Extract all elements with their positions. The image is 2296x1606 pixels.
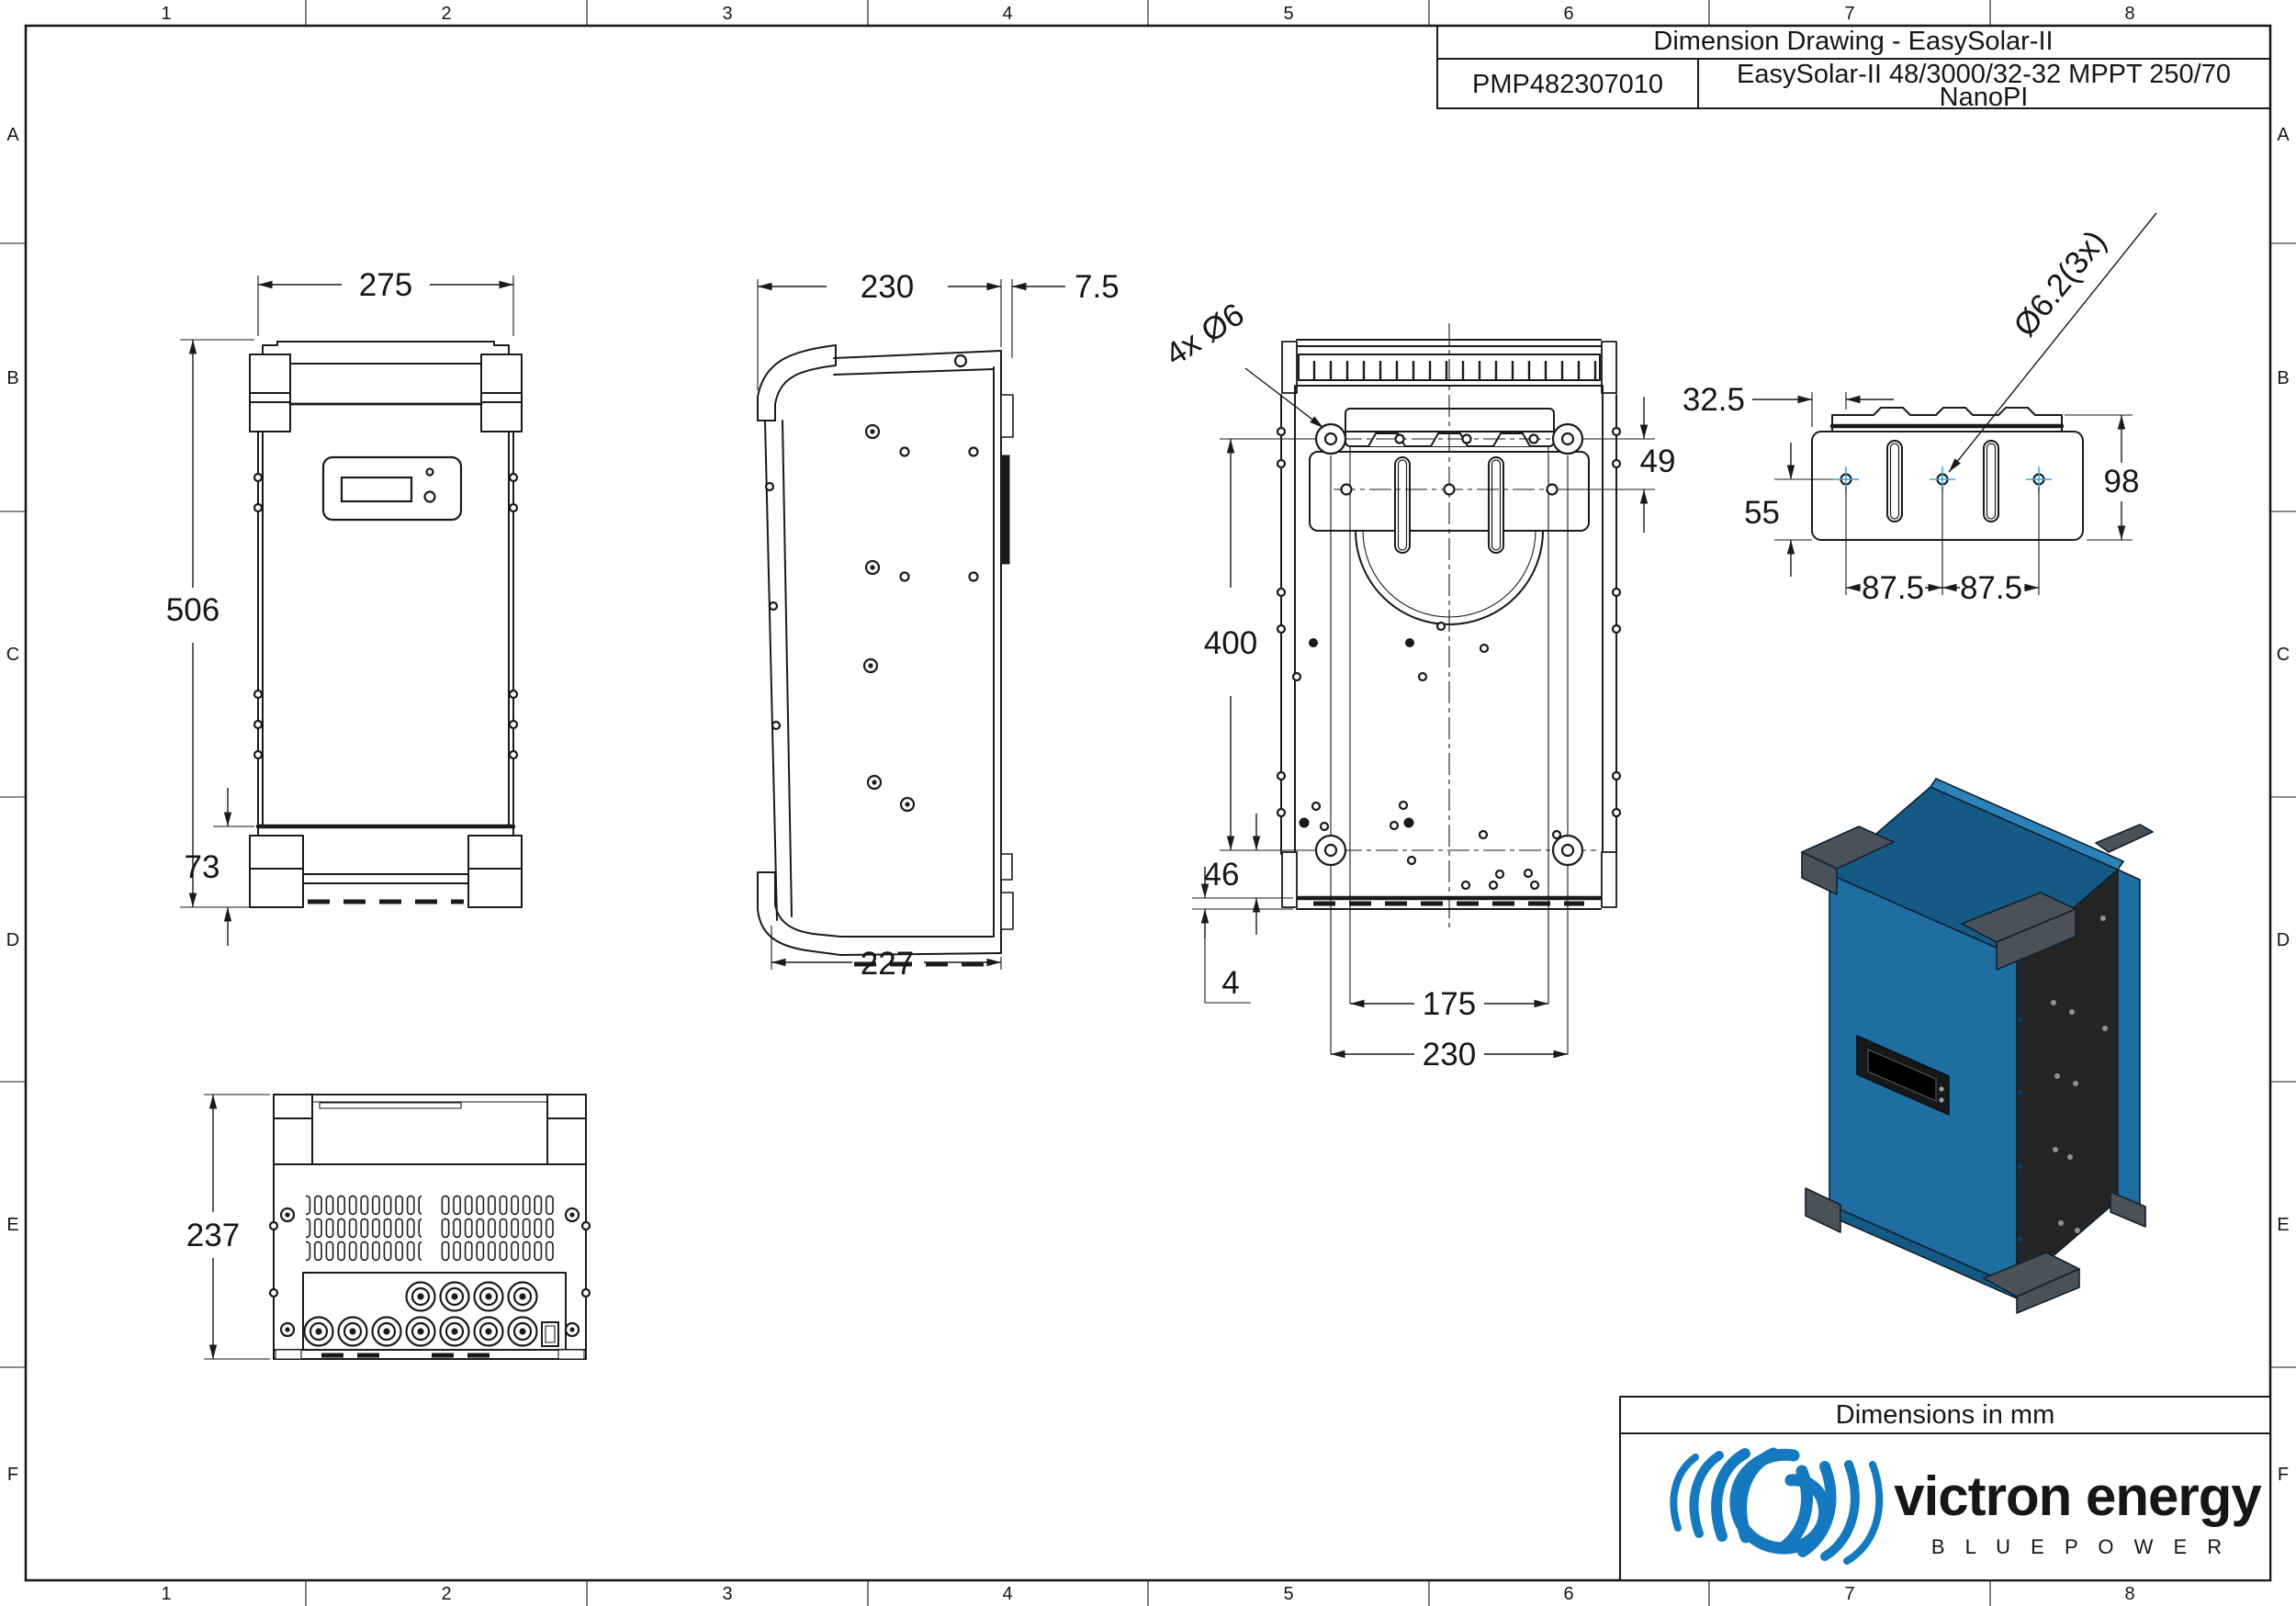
grid-col-label: 4 <box>1002 1584 1012 1604</box>
grid-col-label: 7 <box>1844 4 1854 24</box>
grid-row-label: C <box>2277 645 2290 665</box>
side-view: 230 7.5 227 <box>758 269 1120 982</box>
part-description-line2: NanoPI <box>1940 83 2029 112</box>
dim-bracket-hole-spacing-left: 87.5 <box>1862 570 1924 606</box>
grid-row-label: E <box>2277 1215 2289 1235</box>
grid-row-label: E <box>6 1215 18 1235</box>
dim-front-foot-height: 73 <box>185 849 220 885</box>
grid-row-label: B <box>6 368 18 388</box>
grid-row-label: D <box>2277 930 2290 950</box>
grid-col-label: 6 <box>1563 1584 1573 1604</box>
dim-back-hole-spacing-v: 400 <box>1204 625 1257 661</box>
drawing-title: Dimension Drawing - EasySolar-II <box>1653 27 2053 56</box>
drawing-sheet: 1 2 3 4 5 6 7 8 1 2 3 4 5 6 7 8 A B C D … <box>0 0 2296 1606</box>
grid-col-label: 2 <box>441 1584 451 1604</box>
grid-row-label: A <box>6 125 19 145</box>
grid-col-label: 6 <box>1563 4 1573 24</box>
dim-back-bracket-to-holes: 49 <box>1640 444 1676 479</box>
grid-row-label: F <box>7 1465 18 1485</box>
part-number: PMP482307010 <box>1472 70 1663 99</box>
logo-brand-text: victron energy <box>1894 1466 2262 1527</box>
grid-row-label: B <box>2277 368 2289 388</box>
dim-bracket-hole-spacing-right: 87.5 <box>1960 570 2022 606</box>
logo-tagline-text: B L U E P O W E R <box>1931 1535 2229 1558</box>
dim-back-slot-spacing: 175 <box>1423 986 1476 1022</box>
grid-col-label: 2 <box>441 4 451 24</box>
dim-bracket-height: 98 <box>2104 464 2140 500</box>
grid-col-label: 3 <box>722 4 732 24</box>
note-bracket-holes: Ø6.2(3x) <box>2007 224 2113 343</box>
footer-block: Dimensions in mm victron energy B L U E … <box>1620 1397 2270 1580</box>
title-block: Dimension Drawing - EasySolar-II PMP4823… <box>1437 26 2270 112</box>
grid-row-label: A <box>2277 125 2290 145</box>
grid-col-label: 5 <box>1283 4 1293 24</box>
dim-side-depth-top: 230 <box>861 269 914 305</box>
grid-row-label: C <box>6 645 19 665</box>
dim-bracket-edge-to-hole: 32.5 <box>1683 382 1745 418</box>
grid-row-label: D <box>6 930 19 950</box>
grid-col-label: 1 <box>161 1584 171 1604</box>
grid-col-label: 8 <box>2124 4 2134 24</box>
dimension-drawing-canvas: 1 2 3 4 5 6 7 8 1 2 3 4 5 6 7 8 A B C D … <box>0 0 2296 1606</box>
dim-side-bracket-offset: 7.5 <box>1075 269 1120 305</box>
grid-col-label: 1 <box>161 4 171 24</box>
units-note: Dimensions in mm <box>1836 1400 2055 1430</box>
note-back-mounting-holes: 4x Ø6 <box>1159 297 1251 374</box>
grid-col-label: 7 <box>1844 1584 1854 1604</box>
dim-back-bottom-offset: 46 <box>1204 857 1240 893</box>
vent-grille-right <box>439 1194 555 1263</box>
front-display-panel <box>323 457 461 520</box>
vent-grille-left <box>306 1194 422 1263</box>
dim-front-height: 506 <box>166 592 219 628</box>
grid-row-label: F <box>2278 1465 2289 1485</box>
dim-back-hole-spacing-h: 230 <box>1423 1037 1476 1073</box>
dim-side-depth-bottom: 227 <box>861 946 914 982</box>
grid-col-label: 4 <box>1002 4 1012 24</box>
dim-bottom-depth: 237 <box>186 1218 240 1253</box>
side-screw-holes <box>766 425 978 811</box>
grid-col-label: 8 <box>2124 1584 2134 1604</box>
front-view: 275 506 73 <box>166 267 522 946</box>
dim-front-width: 275 <box>359 267 412 303</box>
back-view: 400 46 4 175 230 49 4x Ø6 <box>1159 297 1683 1073</box>
grid-col-label: 5 <box>1283 1584 1293 1604</box>
grid-col-label: 3 <box>722 1584 732 1604</box>
isometric-view <box>1802 779 2153 1313</box>
dim-bracket-hole-to-bottom: 55 <box>1744 495 1780 531</box>
bracket-view: 32.5 55 87.5 87.5 98 Ø6.2(3x) <box>1683 213 2156 606</box>
dim-back-plate-thickness: 4 <box>1221 965 1239 1001</box>
bottom-view: 237 <box>186 1095 590 1359</box>
